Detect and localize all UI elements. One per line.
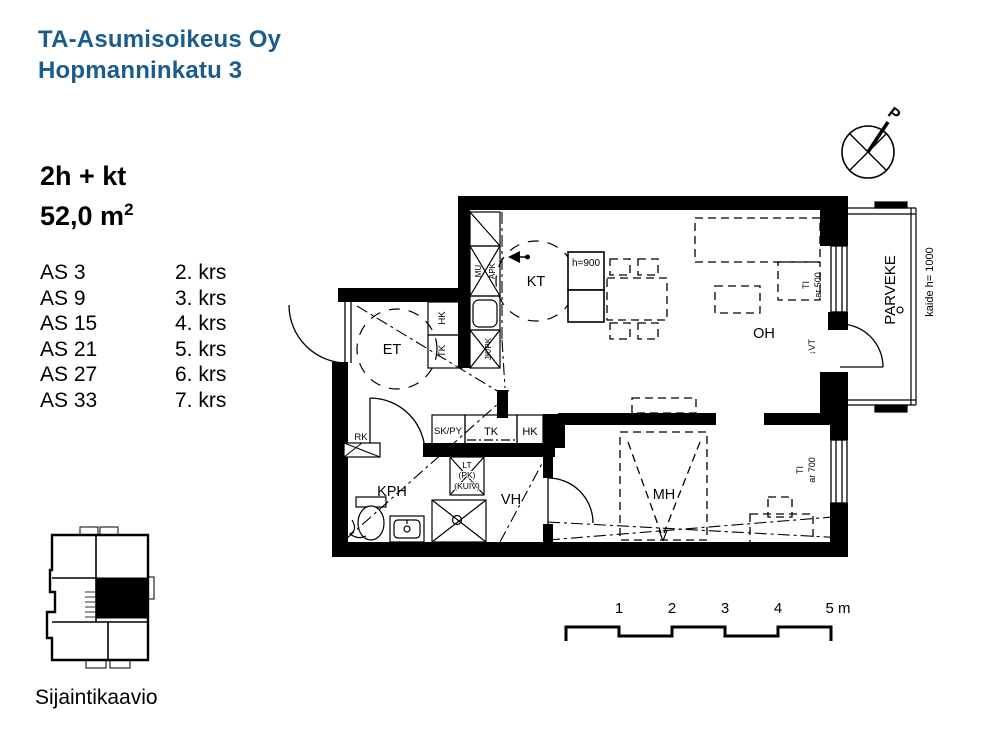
room-label-vh: VH	[501, 492, 521, 508]
window-mh	[831, 440, 847, 503]
north-compass-icon	[842, 122, 894, 178]
room-label-parveke: PARVEKE	[882, 255, 899, 324]
unit-row: AS 337. krs	[40, 388, 226, 414]
apartment-area: 52,0 m2	[40, 193, 134, 233]
unit-row: AS 215. krs	[40, 337, 226, 363]
entry-arrow-icon	[508, 251, 530, 263]
room-label-mh: MH	[653, 487, 676, 503]
apartment-info: 2h + kt 52,0 m2	[40, 160, 134, 233]
project-title-line1: TA-Asumisoikeus Oy	[38, 24, 281, 55]
laundry-label-pk: (PK)	[459, 470, 476, 480]
scale-tick-3: 3	[721, 600, 729, 617]
closet-label-tk: TK	[484, 426, 499, 438]
scale-bar: 1 2 3 4 5 m	[566, 600, 851, 641]
apartment-type: 2h + kt	[40, 160, 134, 193]
room-label-kt: KT	[527, 274, 546, 290]
walls	[332, 196, 848, 557]
location-caption: Sijaintikaavio	[35, 686, 158, 710]
entry-door	[289, 302, 351, 363]
scale-tick-4: 4	[774, 600, 782, 617]
project-title-line2: Hopmanninkatu 3	[38, 55, 281, 86]
rk-label: RK	[354, 432, 368, 443]
scale-tick-2: 2	[668, 600, 676, 617]
window-oh	[831, 246, 847, 312]
bed	[620, 432, 707, 540]
vent-label-ar700: ar 700	[807, 457, 817, 483]
rk-box	[344, 443, 380, 457]
room-label-kph: KPH	[377, 484, 407, 500]
balcony-door	[840, 324, 883, 367]
vent-label-vt: ↓VT	[807, 339, 817, 356]
dining-set	[607, 259, 667, 339]
vent-label-ti2: TI	[795, 466, 805, 474]
scale-tick-5: 5 m	[825, 600, 850, 617]
appliance-label-jkpk: JK/PK	[484, 337, 493, 360]
railing-label: kaide h= 1000	[924, 247, 936, 316]
location-diagram	[30, 515, 220, 680]
room-label-et: ET	[383, 342, 402, 358]
appliance-label-mu: MU	[474, 265, 483, 278]
vent-label-ar500: ar 500	[813, 272, 823, 298]
apartment-location-marker	[97, 578, 147, 618]
unit-row: AS 32. krs	[40, 260, 226, 286]
unit-row: AS 93. krs	[40, 286, 226, 312]
toilet-icon	[356, 497, 386, 540]
laundry-label-lt: LT	[462, 460, 471, 470]
vent-label-ti1: TI	[801, 281, 811, 289]
project-title: TA-Asumisoikeus Oy Hopmanninkatu 3	[38, 24, 281, 86]
scale-tick-1: 1	[615, 600, 623, 617]
kitchen-sink	[473, 300, 497, 327]
vh-door	[548, 477, 593, 525]
unit-floor-list: AS 32. krs AS 93. krs AS 154. krs AS 215…	[40, 260, 226, 413]
laundry-label-kuiv: (KUIV)	[454, 481, 480, 491]
unit-row: AS 276. krs	[40, 362, 226, 388]
coffee-table	[715, 286, 760, 313]
stairwell-hatch	[85, 592, 95, 617]
closet-label-hk-et: HK	[437, 311, 448, 325]
washbasin-icon	[390, 516, 424, 542]
unit-row: AS 154. krs	[40, 311, 226, 337]
island-height-label: h=900	[572, 258, 601, 269]
closet-label-skpy: SK/PY	[434, 426, 463, 437]
sideboard	[632, 398, 696, 413]
floor-plan: MU APK JK/PK HK TK SK/PY TK HK LT (PK) (…	[280, 88, 960, 670]
closet-label-hk: HK	[522, 426, 538, 438]
room-label-oh: OH	[753, 326, 775, 342]
